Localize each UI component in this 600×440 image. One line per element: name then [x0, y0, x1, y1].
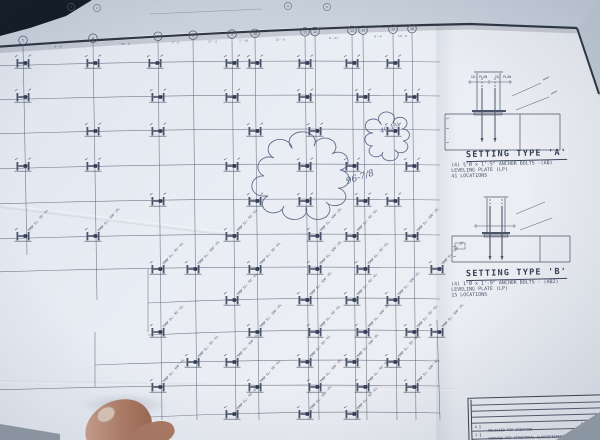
grid-dimension: 1'-10 — [239, 39, 248, 43]
grid-line-horizontal — [0, 234, 440, 239]
elevation-tag: T/BP EL: 100'-0⅞ — [397, 271, 421, 297]
column-symbol: T/BP EL: 99'-6⅞ — [224, 273, 259, 306]
elevation-tag: T/BP EL: 99'-6⅞ — [356, 273, 378, 297]
grid-line-vertical — [363, 35, 367, 420]
grid-dimension: 6'-11 — [329, 36, 338, 40]
grid-bubble-label: 16 — [410, 27, 414, 31]
grid-bubble-label: 14 — [361, 29, 365, 33]
column-symbol: T/BP EL: 99'-6⅞ — [224, 209, 259, 242]
back-sheet-bubble-label: 9 — [326, 5, 328, 9]
plan-linework: 1289 56789101112131415169'-419'-63'-217'… — [0, 0, 600, 440]
column-symbol: T/BP EL: 100'-0⅞ — [297, 271, 333, 305]
back-sheet-line — [150, 9, 262, 14]
grid-dimension: 9'-4 — [54, 44, 61, 48]
column-symbol: T/BP EL: 100'-0⅞ — [224, 333, 260, 367]
column-symbol: T/BP EL: 100'-0⅞ — [247, 303, 283, 337]
column-symbol: T/BP EL: 100'-0⅞ — [307, 207, 343, 241]
column-symbol: T/BP EL: 99'-6⅞ — [150, 242, 185, 275]
column-symbol: T/BP EL: 100'-0⅞ — [297, 385, 333, 419]
column-symbol: T/BP EL: 99'-6⅞ — [344, 273, 379, 306]
back-sheet-grid-bubbles: 1289 — [67, 2, 330, 11]
column-symbol: T/BP EL: 100'-0⅞ — [404, 358, 440, 392]
detail-setting-a — [445, 72, 560, 150]
column-symbol: T/BP EL: 100'-0⅞ — [307, 358, 343, 392]
column-symbol — [15, 158, 32, 171]
back-sheet-bubble-label: 8 — [287, 4, 289, 8]
grid-line-horizontal — [0, 164, 440, 169]
elevation-tag: T/BP EL: 99'-6⅞ — [197, 335, 219, 359]
elevation-tag: T/BP EL: 100'-0⅞ — [309, 271, 333, 297]
grid-bubble-label: 12 — [313, 30, 317, 34]
column-symbol: T/BP EL: 99'-6⅞ — [355, 242, 390, 275]
elevation-tag: T/BP EL: 100'-0⅞ — [259, 303, 283, 329]
column-symbol — [85, 123, 102, 136]
grid-dimension: 12'-0 — [275, 38, 284, 42]
grid-bubble-label: 9 — [231, 32, 233, 36]
elevation-tag: T/BP EL: 100'-0⅞ — [441, 303, 465, 329]
grid-line-vertical — [315, 36, 319, 420]
column-symbol: T/BP EL: 100'-0⅞ — [307, 240, 343, 274]
elevation-tag: T/BP EL: 99'-6⅞ — [397, 335, 419, 359]
column-symbol: T/BP EL: 100'-0⅞ — [355, 303, 391, 337]
column-symbol — [297, 89, 314, 102]
elevation-tag: T/BP EL: 100'-0⅞ — [197, 240, 221, 266]
setting-type-a-notes: (4) ¾"Ø x 1'-5" ANCHOR BOLTS -(AB) LEVEL… — [451, 158, 600, 178]
column-symbol — [150, 123, 167, 136]
grid-bubble-label: 7 — [157, 35, 159, 39]
grid-line-horizontal — [0, 95, 440, 100]
elevation-tag: T/BP EL: 99'-6⅞ — [416, 305, 438, 329]
grid-dimension: 9'-4 — [374, 35, 381, 39]
column-symbol — [150, 193, 167, 206]
elevation-tag: T/BP EL: 99'-6⅞ — [27, 209, 49, 233]
plan-grid: 56789101112131415169'-419'-63'-217'-51'-… — [0, 24, 440, 420]
grid-line-horizontal — [150, 412, 440, 417]
column-symbol: T/BP EL: 99'-6⅞ — [344, 209, 379, 242]
grid-line-horizontal — [0, 61, 440, 66]
column-symbol: T/BP EL: 99'-6⅞ — [15, 209, 50, 242]
photo-of-structural-drawing: 1289 56789101112131415169'-419'-63'-217'… — [0, 0, 600, 440]
column-symbol: T/BP EL: 99'-6⅞ — [344, 387, 379, 420]
sheet-right-edge — [577, 28, 599, 94]
elevation-tag: T/BP EL: 99'-6⅞ — [259, 242, 281, 266]
elevation-tag: T/BP EL: 100'-0⅞ — [367, 303, 391, 329]
detail-setting-b — [452, 197, 570, 262]
column-symbol — [297, 193, 314, 206]
elevation-tag: T/BP EL: 99'-6⅞ — [162, 242, 184, 266]
elevation-tag: T/BP EL: 99'-6⅞ — [236, 387, 258, 411]
column-symbol: T/BP EL: 99'-6⅞ — [247, 360, 282, 393]
grid-bubble-label: 8 — [192, 34, 194, 38]
grid-line-horizontal — [0, 199, 440, 204]
grid-bubble-label: 11 — [303, 30, 307, 34]
elevation-tag: T/BP EL: 99'-6⅞ — [319, 305, 341, 329]
elevation-tag: T/BP EL: 99'-6⅞ — [236, 273, 258, 297]
grid-line-vertical — [412, 33, 416, 420]
column-symbol — [147, 55, 164, 68]
elevation-tag: T/BP EL: 99'-6⅞ — [259, 360, 281, 384]
elevation-tag: T/BP EL: 100'-0⅞ — [97, 207, 121, 233]
grid-dimension: 17'-5 — [208, 40, 217, 44]
column-symbol: T/BP EL: 99'-6⅞ — [355, 360, 390, 393]
back-sheet-bubble-label: 2 — [96, 6, 98, 10]
grid-line-vertical — [23, 45, 27, 255]
column-symbol — [15, 89, 32, 102]
grid-line-horizontal — [0, 129, 440, 134]
elevation-tag: T/BP EL: 99'-6⅞ — [367, 360, 389, 384]
elevation-tag: T/BP EL: 100'-0⅞ — [319, 207, 343, 233]
elevation-tag: T/BP EL: 100'-0⅞ — [416, 358, 440, 384]
column-symbol: T/BP EL: 100'-0⅞ — [344, 333, 380, 367]
detail-a-dim-label-1: SQ. PLAN — [471, 75, 487, 79]
grid-bubble-label: 15 — [391, 28, 395, 32]
grid-bubble-label: 10 — [253, 32, 257, 36]
column-symbol — [150, 89, 167, 102]
column-symbol — [307, 123, 324, 136]
anchor-bolt-arrowheads — [489, 256, 504, 261]
grid-dimension: 3'-2 — [172, 41, 179, 45]
column-symbol: T/BP EL: 100'-0⅞ — [404, 207, 440, 241]
column-symbol: T/BP EL: 99'-6⅞ — [307, 305, 342, 338]
column-symbol: T/BP EL: 99'-6⅞ — [150, 305, 185, 338]
elevation-tag: T/BP EL: 99'-6⅞ — [367, 242, 389, 266]
grid-bubble-label: 5 — [22, 39, 24, 43]
column-symbol — [297, 158, 314, 171]
column-symbol: T/BP EL: 99'-6⅞ — [385, 335, 420, 368]
elevation-tag: T/BP EL: 99'-6⅞ — [356, 209, 378, 233]
elevation-tag: T/BP EL: 100'-0⅞ — [162, 358, 186, 384]
column-symbol: T/BP EL: 100'-0⅞ — [429, 240, 465, 274]
back-sheet-bubble-label: 1 — [70, 5, 72, 9]
grid-dimension: 19'-6 — [121, 42, 130, 46]
column-symbol: T/BP EL: 100'-0⅞ — [185, 240, 221, 274]
plan-step-boundary — [95, 269, 148, 387]
elevation-tag: T/BP EL: 99'-6⅞ — [162, 305, 184, 329]
revision-mark: A — [472, 425, 480, 429]
grid-line-vertical — [437, 320, 440, 420]
elevation-tag: T/BP EL: 99'-6⅞ — [236, 209, 258, 233]
column-symbols: T/BP EL: 99'-6⅞T/BP EL: 100'-0⅞T/BP EL: … — [15, 55, 465, 419]
detail-a-dim-label-2: SQ. PLAN — [495, 75, 511, 79]
revision-mark: 1 — [472, 433, 480, 437]
setting-type-b-notes: (4) 1"Ø x 1'-9" ANCHOR BOLTS - (AB2) LEV… — [451, 277, 600, 297]
grid-bubble-label: 13 — [350, 29, 354, 33]
column-symbol: T/BP EL: 99'-6⅞ — [297, 335, 332, 368]
grid-line-horizontal — [0, 267, 440, 272]
column-symbol: T/BP EL: 100'-0⅞ — [150, 358, 186, 392]
elevation-tag: T/BP EL: 100'-0⅞ — [416, 207, 440, 233]
elevation-tag: T/BP EL: 99'-6⅞ — [309, 335, 331, 359]
elevation-tag: T/BP EL: 100'-0⅞ — [319, 358, 343, 384]
column-symbol: T/BP EL: 99'-6⅞ — [185, 335, 220, 368]
anchor-bolt-arrowheads — [481, 138, 497, 143]
column-symbol: T/BP EL: 99'-6⅞ — [247, 242, 282, 275]
grid-dimension: 19'-6 — [398, 34, 407, 38]
column-symbol — [85, 158, 102, 171]
elevation-tag: T/BP EL: 100'-0⅞ — [319, 240, 343, 266]
grid-bubble-label: 6 — [92, 37, 94, 41]
column-symbol: T/BP EL: 99'-6⅞ — [224, 387, 259, 420]
